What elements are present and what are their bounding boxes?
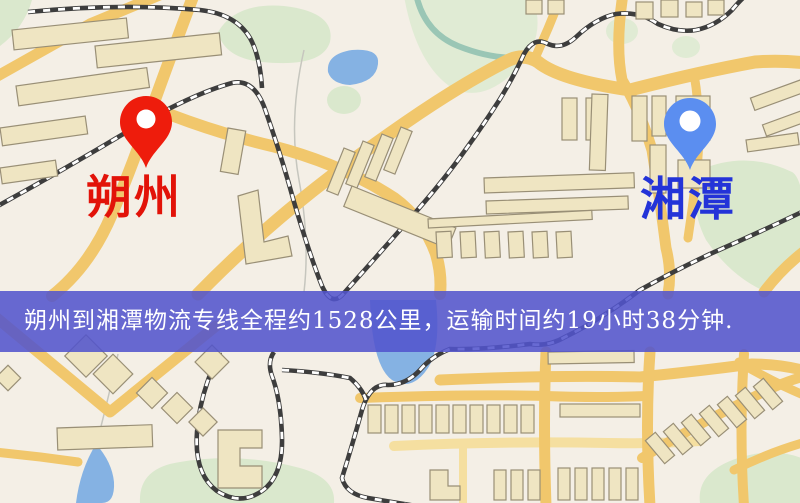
origin-pin-hole — [137, 110, 156, 129]
destination-city-label: 湘潭 — [640, 176, 736, 222]
route-info-banner: 朔州到湘潭物流专线全程约1528公里，运输时间约19小时38分钟. — [0, 291, 800, 352]
route-info-text: 朔州到湘潭物流专线全程约1528公里，运输时间约19小时38分钟. — [0, 291, 800, 352]
origin-city-label: 朔州 — [86, 174, 182, 220]
destination-pin-hole — [680, 111, 701, 132]
logistics-route-map: 朔州 湘潭 朔州到湘潭物流专线全程约1528公里，运输时间约19小时38分钟. — [0, 0, 800, 503]
map-background — [0, 0, 800, 503]
